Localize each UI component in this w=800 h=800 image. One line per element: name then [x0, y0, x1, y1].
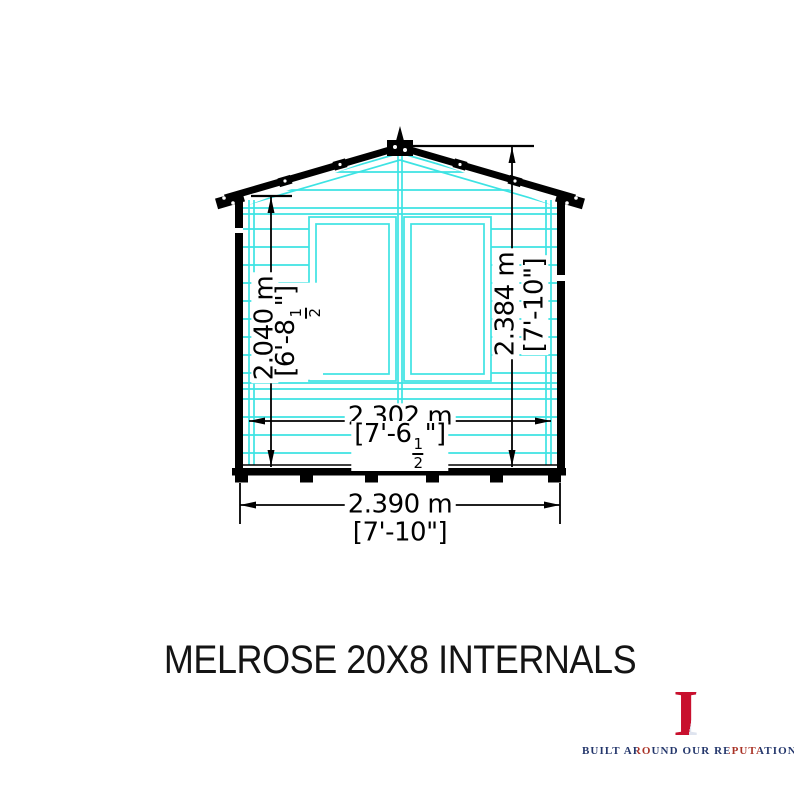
- logo-letter: E: [740, 695, 780, 741]
- shire-logo-wordmark: S H I R E: [582, 686, 794, 742]
- logo-letter: H: [624, 687, 675, 742]
- right-wall: [557, 202, 565, 468]
- right-window: [404, 217, 491, 381]
- floor-bearers: [235, 476, 561, 483]
- dim-internal-width-imperial: [7'-612"]: [351, 421, 448, 471]
- imperial-prefix: [7'-6: [354, 419, 411, 449]
- dim-overall-width-metric: 2.390 m: [345, 491, 456, 518]
- fraction: 12: [289, 307, 323, 318]
- logo-letter: I: [673, 686, 699, 742]
- imperial-suffix: "]: [425, 419, 446, 449]
- dim-overall-width-imperial: [7'-10"]: [350, 519, 450, 546]
- imperial-suffix: "]: [271, 285, 301, 306]
- imperial-prefix: [6'-8: [271, 319, 301, 376]
- dim-right-height-metric: 2.384 m: [492, 249, 519, 360]
- page-title: MELROSE 20X8 INTERNALS: [40, 638, 760, 683]
- dim-left-height-imperial: [6'-812"]: [273, 282, 323, 379]
- left-wall: [235, 202, 243, 468]
- fraction: 12: [413, 437, 424, 471]
- logo-tagline: BUILT AROUND OUR REPUTATION: [582, 745, 794, 757]
- apex-plate: [387, 140, 413, 156]
- shire-logo: S H I R E BUILT AROUND OUR REPUTATION: [582, 686, 794, 757]
- logo-letter: R: [697, 687, 746, 743]
- page: 2.040 m [6'-812"] 2.384 m [7'-10"] 2.302…: [0, 0, 800, 800]
- dim-right-height-imperial: [7'-10"]: [521, 255, 548, 355]
